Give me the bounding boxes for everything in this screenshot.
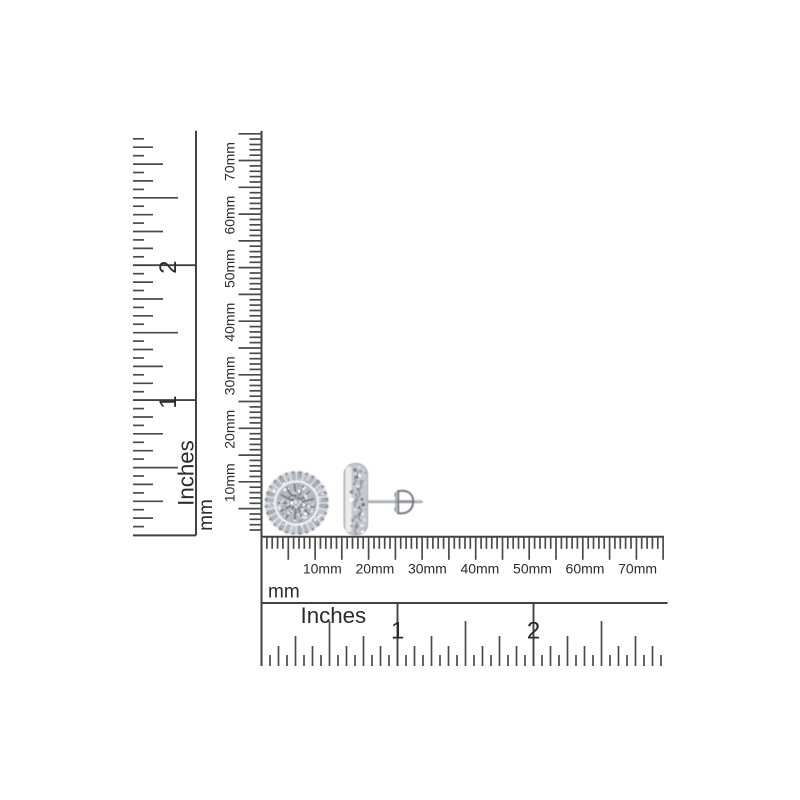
svg-text:1: 1	[391, 618, 404, 645]
svg-text:mm: mm	[196, 499, 217, 531]
svg-text:2: 2	[155, 261, 182, 274]
svg-text:50mm: 50mm	[222, 249, 238, 288]
svg-text:10mm: 10mm	[222, 463, 238, 502]
svg-text:Inches: Inches	[173, 440, 198, 506]
svg-text:40mm: 40mm	[222, 303, 238, 342]
svg-text:10mm: 10mm	[303, 560, 342, 576]
svg-text:70mm: 70mm	[222, 142, 238, 181]
svg-text:40mm: 40mm	[460, 560, 499, 576]
svg-text:2: 2	[527, 618, 540, 645]
svg-text:20mm: 20mm	[355, 560, 394, 576]
svg-text:60mm: 60mm	[222, 196, 238, 235]
svg-text:mm: mm	[268, 582, 300, 603]
svg-text:60mm: 60mm	[566, 560, 605, 576]
svg-text:1: 1	[155, 395, 182, 408]
svg-text:70mm: 70mm	[618, 560, 657, 576]
svg-text:50mm: 50mm	[513, 560, 552, 576]
svg-text:30mm: 30mm	[408, 560, 447, 576]
svg-text:30mm: 30mm	[222, 356, 238, 395]
svg-text:Inches: Inches	[301, 603, 367, 628]
svg-text:20mm: 20mm	[222, 410, 238, 449]
